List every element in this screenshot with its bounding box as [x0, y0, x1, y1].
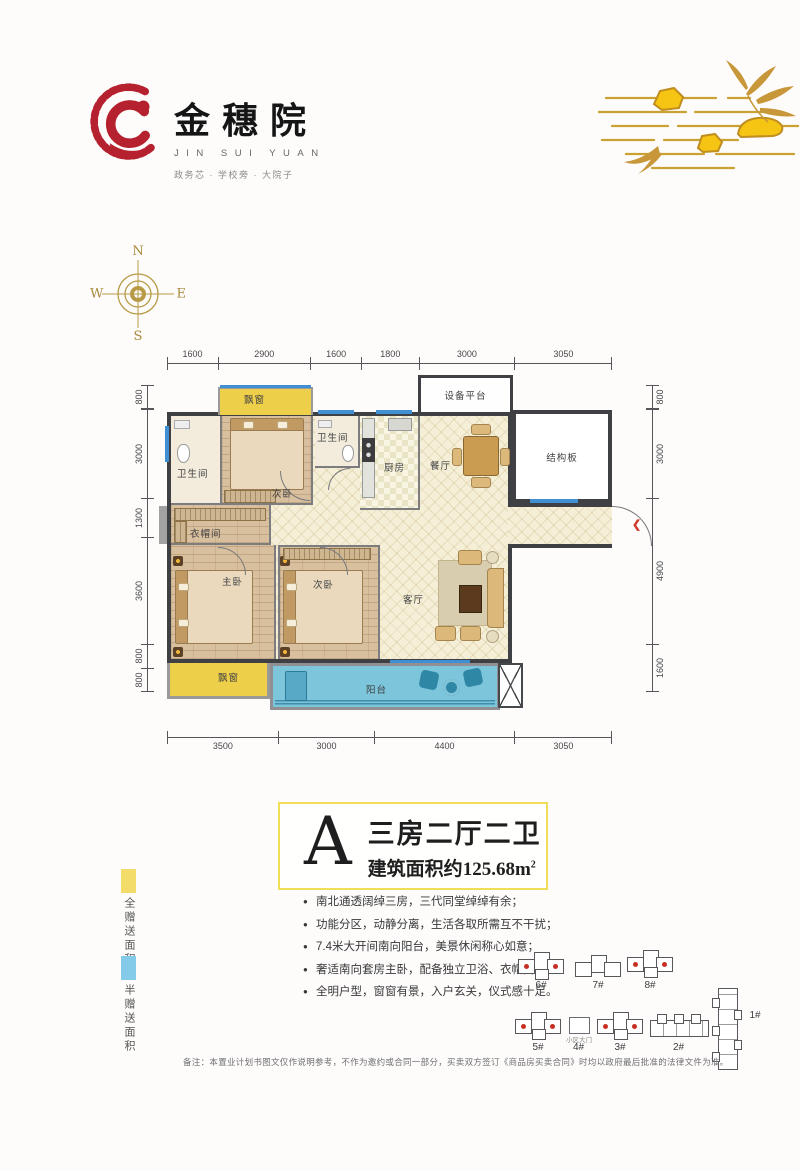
dim-segment: 3000 [136, 409, 154, 498]
room-label-bedroom-second: 次卧 [313, 577, 334, 591]
brand-block: 金穗院 JIN SUI YUAN 政务芯 · 学校旁 · 大院子 [174, 92, 394, 181]
bay-window-top [218, 387, 313, 415]
unit-dot [603, 1024, 608, 1029]
building-tab [532, 1029, 546, 1040]
room-structural-slab: 结构板 [512, 410, 612, 503]
bathroom-sink [174, 420, 190, 429]
stove [362, 438, 375, 462]
unit-dot [550, 1024, 555, 1029]
building-wing [515, 1019, 532, 1034]
dim-label: 3000 [134, 444, 144, 464]
window-bathroom-mid [318, 410, 354, 414]
building-wing [544, 1019, 561, 1034]
building-tab [734, 1040, 742, 1050]
closet [174, 521, 187, 543]
pillow [286, 619, 297, 627]
pillow [178, 619, 189, 627]
entry-arrow-icon: ❮ [632, 518, 641, 531]
building-tab [674, 1014, 684, 1024]
kitchen-sink [388, 418, 412, 431]
dim-segment: 2900 [218, 352, 311, 370]
building-tab [644, 967, 658, 978]
unit-dot [633, 962, 638, 967]
balcony-table [443, 679, 460, 696]
building-wing [597, 1019, 614, 1034]
room-label-living-room: 客厅 [403, 592, 424, 606]
sofa [487, 568, 504, 628]
unit-area-label: 建筑面积约125.68m2 [368, 854, 542, 881]
floorplan-brochure-page: 金穗院 JIN SUI YUAN 政务芯 · 学校旁 · 大院子 [0, 0, 800, 1171]
armchair [460, 626, 481, 641]
balcony-chair [418, 669, 439, 690]
bed-headboard [176, 571, 188, 643]
building-label-6: 6# [518, 980, 564, 991]
dining-chair [452, 448, 462, 466]
dim-label: 3000 [279, 741, 375, 751]
compass-east-label: E [177, 287, 187, 302]
building-label-4: 4# [569, 1042, 588, 1053]
feature-item: 功能分区，动静分离，生活各取所需互不干扰； [303, 914, 603, 937]
entry-hall [508, 503, 612, 548]
dimension-column-left: 800 3000 1300 3600 800 800 [136, 385, 154, 692]
dim-label: 800 [134, 673, 144, 688]
unit-letter: A [280, 812, 368, 879]
building-3 [597, 1012, 643, 1040]
dining-chair [471, 477, 491, 488]
dining-table [463, 436, 499, 476]
pillow [277, 421, 288, 429]
room-label-kitchen: 厨房 [384, 460, 405, 474]
building-tab [734, 1010, 742, 1020]
dim-label: 3000 [419, 349, 515, 359]
room-label: 结构板 [546, 450, 578, 464]
room-label-bedroom-top: 次卧 [272, 486, 293, 500]
pillow [178, 583, 189, 591]
room-equipment-platform: 设备平台 [418, 375, 513, 415]
legend-swatch-half-gift [121, 956, 136, 980]
dim-segment: 1800 [362, 352, 419, 370]
unit-dot [662, 962, 667, 967]
dim-label: 4400 [374, 741, 514, 751]
dim-label: 1800 [362, 349, 419, 359]
building-label-8: 8# [627, 980, 673, 991]
building-label-3: 3# [597, 1042, 643, 1053]
building-label-1: 1# [745, 1010, 765, 1021]
dining-chair [471, 424, 491, 435]
building-wing [627, 957, 644, 972]
dim-label: 800 [655, 389, 665, 404]
dim-segment: 3050 [515, 352, 612, 370]
dim-segment: 3000 [419, 352, 515, 370]
dim-segment: 4400 [374, 732, 514, 750]
room-label-bay-window-top: 飘窗 [244, 392, 265, 406]
site-map: 6# 7# 8# 5# 小区大门 4# 3# [505, 940, 800, 1075]
dim-segment: 4900 [646, 498, 664, 644]
unit-area-sup: 2 [531, 859, 536, 870]
unit-info: 三房二厅二卫 建筑面积约125.68m2 [368, 812, 542, 881]
building-6 [518, 952, 564, 980]
brand-name-cn: 金穗院 [174, 92, 394, 144]
brand-wheat-emblem-icon [85, 80, 171, 166]
toilet [342, 445, 354, 462]
dim-segment: 1300 [136, 498, 154, 537]
building-tab [614, 1029, 628, 1040]
unit-dot [632, 1024, 637, 1029]
building-wing [656, 957, 673, 972]
room-label-master-bedroom: 主卧 [222, 574, 243, 588]
pillow [243, 421, 254, 429]
closet [174, 508, 266, 521]
armchair [435, 626, 456, 641]
building-label-7: 7# [575, 980, 621, 991]
unit-dot [524, 964, 529, 969]
wheat-decoration-illustration [598, 52, 800, 182]
dim-segment: 800 [136, 644, 154, 668]
feature-item: 南北通透阔绰三房，三代同堂绰绰有余； [303, 891, 603, 914]
compass-rose: N E S W [92, 248, 184, 340]
window-bathroom-left [165, 426, 169, 462]
window-bay-top [220, 385, 311, 388]
unit-area-prefix: 建筑面积约 [368, 859, 463, 880]
legend-label-half-gift: 半赠送面积 [121, 984, 137, 1054]
room-label-cloakroom: 衣帽间 [190, 526, 222, 540]
bed-headboard [284, 571, 296, 643]
unit-dot [521, 1024, 526, 1029]
dim-segment: 800 [646, 385, 664, 409]
building-tab [535, 969, 549, 980]
building-wing [626, 1019, 643, 1034]
building-wing [604, 962, 621, 977]
dim-segment: 1600 [167, 352, 218, 370]
building-tab [657, 1014, 667, 1024]
dim-label: 800 [134, 649, 144, 664]
dim-label: 4900 [655, 561, 665, 581]
dim-segment: 3050 [515, 732, 612, 750]
unit-dot [553, 964, 558, 969]
room-label-bathroom-mid: 卫生间 [317, 430, 349, 444]
brand-tagline: 政务芯 · 学校旁 · 大院子 [174, 168, 394, 181]
dim-label: 3000 [655, 444, 665, 464]
dimension-row-top: 1600 2900 1600 1800 3000 3050 [167, 352, 612, 370]
room-label-dining: 餐厅 [430, 458, 451, 472]
building-tab [712, 1026, 720, 1036]
bathroom-sink [318, 420, 332, 428]
nightstand [280, 647, 290, 657]
dim-label: 1600 [167, 349, 218, 359]
window-kitchen [376, 410, 412, 414]
side-table [486, 630, 499, 643]
wardrobe [224, 490, 276, 503]
building-tab [691, 1014, 701, 1024]
unit-area-value: 125.68m [463, 859, 531, 880]
window-structural-slab [530, 499, 578, 503]
dim-segment: 800 [136, 668, 154, 692]
pillow [286, 583, 297, 591]
legend-swatch-full-gift [121, 869, 136, 893]
compass-north-label: N [132, 244, 143, 259]
dim-segment: 1600 [311, 352, 362, 370]
dim-label: 3500 [167, 741, 279, 751]
ac-platform [159, 506, 167, 544]
dim-segment: 3600 [136, 537, 154, 644]
dim-label: 3600 [134, 581, 144, 601]
room-label-balcony: 阳台 [366, 682, 387, 696]
shaft-box [498, 663, 523, 708]
dim-label: 2900 [218, 349, 311, 359]
brand-name-en: JIN SUI YUAN [174, 148, 394, 159]
coffee-table [459, 585, 482, 613]
disclaimer-text: 备注：本置业计划书图文仅作说明参考，不作为邀约或合同一部分，买卖双方签订《商品房… [183, 1056, 795, 1068]
dim-label: 1600 [311, 349, 362, 359]
building-4-gate [569, 1017, 590, 1034]
dim-label: 3050 [515, 741, 612, 751]
dim-label: 3050 [515, 349, 612, 359]
dim-segment: 1600 [646, 644, 664, 692]
dimension-row-bottom: 3500 3000 4400 3050 [167, 732, 612, 750]
building-wing [575, 962, 592, 977]
building-label-2: 2# [650, 1042, 707, 1053]
side-table [486, 551, 499, 564]
building-label-5: 5# [515, 1042, 561, 1053]
nightstand [173, 647, 183, 657]
building-2 [650, 1014, 707, 1036]
building-tab [712, 998, 720, 1008]
building-wing [518, 959, 535, 974]
room-label-bay-window-bottom: 飘窗 [218, 670, 239, 684]
washing-machine [285, 671, 307, 701]
nightstand [173, 556, 183, 566]
dim-label: 1600 [655, 658, 665, 678]
balcony-railing [275, 700, 495, 706]
toilet [177, 444, 190, 463]
building-5 [515, 1012, 561, 1040]
dim-label: 1300 [134, 508, 144, 528]
window-living-balcony [390, 660, 470, 663]
dining-chair [500, 448, 510, 466]
dim-segment: 3000 [279, 732, 375, 750]
unit-title-box: A 三房二厅二卫 建筑面积约125.68m2 [278, 802, 548, 890]
room-label: 设备平台 [444, 388, 486, 402]
building-7 [575, 955, 621, 983]
dim-segment: 3500 [167, 732, 279, 750]
floor-plan: 1600 2900 1600 1800 3000 3050 3500 3000 … [120, 330, 680, 770]
dim-segment: 3000 [646, 409, 664, 498]
dim-label: 800 [134, 389, 144, 404]
room-label-bathroom-left: 卫生间 [177, 466, 209, 480]
bed-headboard [231, 419, 303, 431]
dim-segment: 800 [136, 385, 154, 409]
compass-icon [92, 248, 184, 340]
unit-layout-label: 三房二厅二卫 [368, 812, 542, 851]
building-wing [547, 959, 564, 974]
armchair [458, 550, 482, 565]
building-8 [627, 950, 673, 978]
compass-west-label: W [90, 287, 103, 302]
